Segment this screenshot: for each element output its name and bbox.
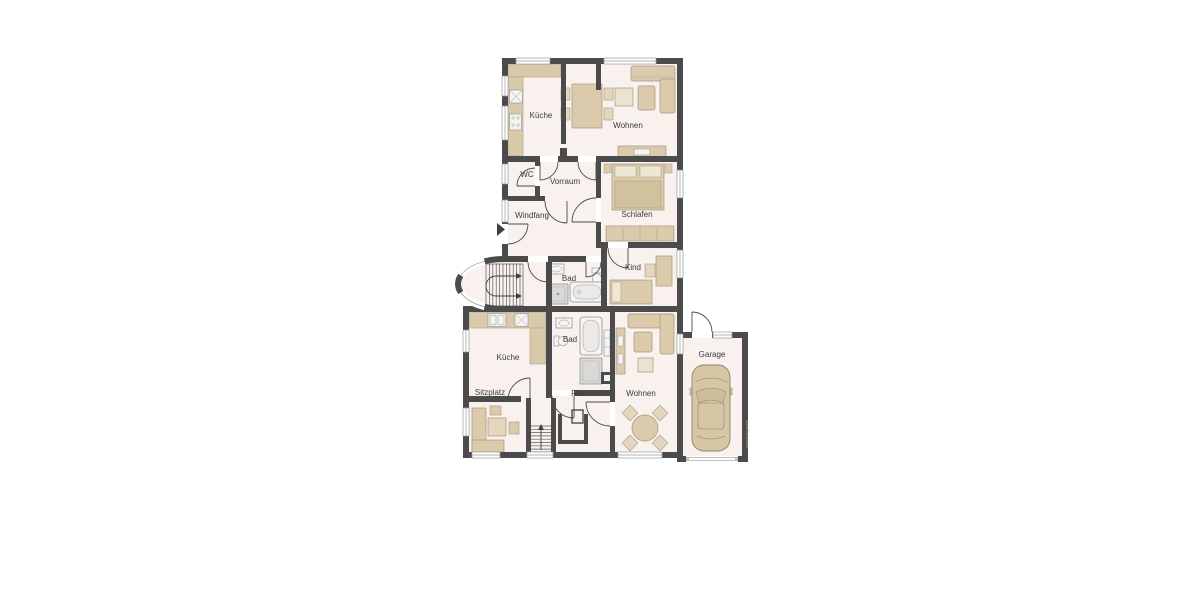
room-label-bad-eg: Bad: [563, 335, 577, 344]
desk-chair-icon: [645, 264, 655, 277]
room-label-kind: Kind: [625, 263, 641, 272]
room-label-wohnen-og: Wohnen: [613, 121, 643, 130]
side-table-icon: [615, 88, 633, 106]
double-bed-icon: [604, 164, 672, 210]
room-label-kueche-eg: Küche: [497, 353, 520, 362]
stove-lower-icon: [515, 314, 528, 327]
shower-lower-icon: [580, 358, 602, 384]
armchair-lower-icon: [634, 332, 652, 352]
garage-door: [686, 456, 738, 462]
floor-plan: Küche Wohnen WC Vorraum Windfang Schlafe…: [0, 0, 1200, 600]
room-label-wc: WC: [520, 170, 534, 179]
room-label-schlafen: Schlafen: [621, 210, 652, 219]
room-label-garage: Garage: [699, 350, 726, 359]
chimney-icon: [601, 372, 613, 384]
terrace-table-icon: [488, 418, 506, 436]
wardrobe-icon: [606, 226, 674, 241]
floor-plan-page: Küche Wohnen WC Vorraum Windfang Schlafe…: [0, 0, 1200, 600]
side-table-lower-icon: [638, 358, 653, 372]
room-label-windfang: Windfang: [515, 211, 549, 220]
room-label-kueche-og: Küche: [530, 111, 553, 120]
room-label-vorraum: Vorraum: [550, 177, 581, 186]
single-bed-icon: [610, 280, 652, 304]
armchair-icon: [638, 86, 655, 110]
radiator-icon: [604, 330, 610, 356]
watermark-text: MeinGrundriss: [745, 420, 750, 449]
terrace-chair2-icon: [490, 406, 501, 415]
room-label-sitzplatz: Sitzplatz: [475, 388, 505, 397]
bathtub-lower-icon: [580, 317, 602, 355]
car-icon: [690, 365, 732, 451]
double-sink-icon: [488, 314, 506, 327]
sink-icon: [510, 90, 523, 103]
stove-icon: [510, 114, 522, 130]
room-label-flur: Flur: [571, 389, 585, 398]
terrace-chair-icon: [509, 422, 519, 434]
bathtub-icon: [570, 282, 604, 302]
cabinet-icon: [616, 328, 625, 374]
room-label-wohnen-eg: Wohnen: [626, 389, 656, 398]
room-label-bad-og: Bad: [562, 274, 576, 283]
desk-icon: [656, 256, 672, 286]
washbasin-lower-icon: [556, 318, 572, 328]
